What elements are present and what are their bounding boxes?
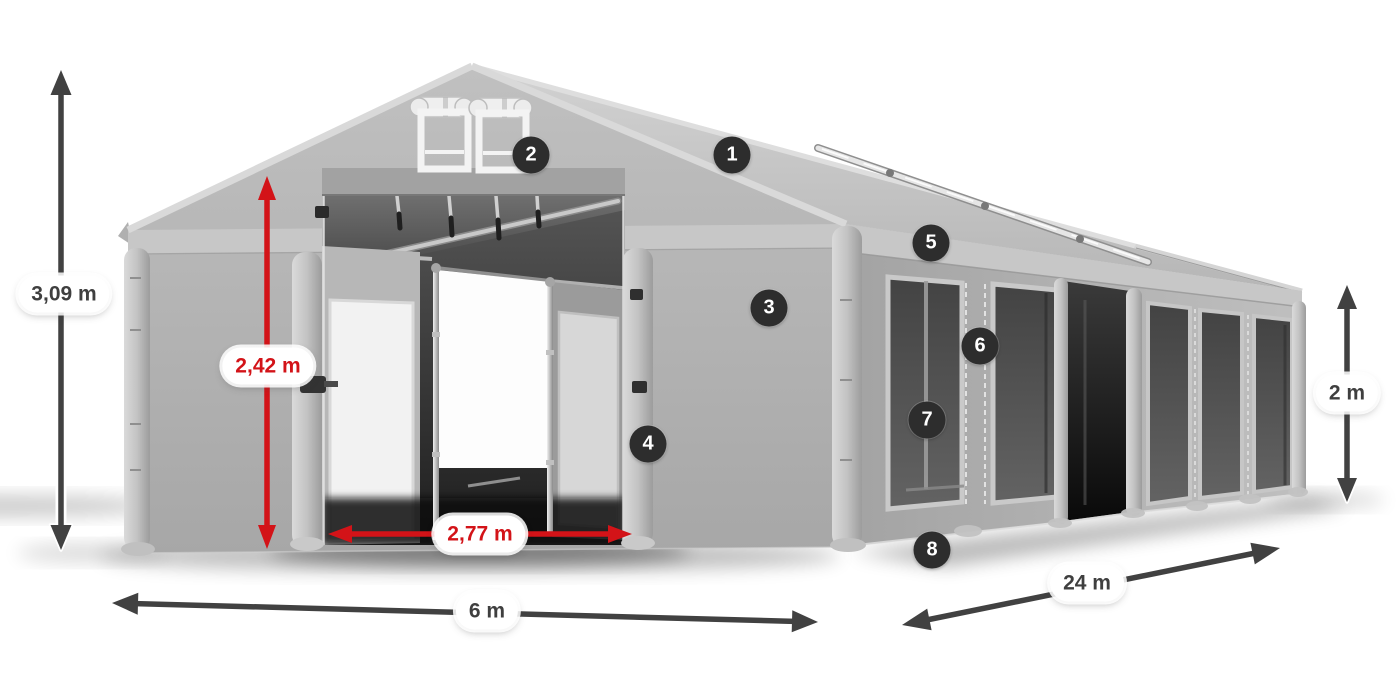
side-height-label: 2 m: [1316, 375, 1378, 412]
callout-7-frame-pole: 7: [909, 402, 946, 439]
rolled-flap-left: [1054, 278, 1068, 524]
door-frame-right: [621, 248, 655, 550]
side-window-1: [888, 277, 964, 509]
tent-illustration: [0, 0, 1400, 700]
callout-2-roof-vents: 2: [513, 137, 550, 174]
see-through-gap: [438, 270, 550, 468]
rear-corner-roll: [1292, 301, 1306, 495]
side-window-3: [1148, 303, 1190, 504]
tent-dimension-diagram: 3,09 m 2,42 m 2,77 m 6 m 24 m 2 m 1 2 3 …: [0, 0, 1400, 700]
total-height-label: 3,09 m: [18, 276, 109, 313]
side-window-4: [1200, 310, 1242, 498]
side-entrance-open: [1054, 278, 1142, 524]
callout-6-window-panel: 6: [962, 328, 999, 365]
front-right-corner-roll: [830, 226, 866, 552]
front-left-corner-roll: [121, 248, 155, 556]
front-door-interior: [322, 194, 625, 545]
door-width-label: 2,77 m: [434, 516, 525, 553]
door-hinge-top-right: [630, 289, 643, 300]
door-hinge-top-left: [315, 206, 329, 218]
door-height-label: 2,42 m: [222, 348, 313, 385]
side-length-label: 24 m: [1050, 565, 1124, 602]
callout-5-valance: 5: [913, 225, 950, 262]
rolled-flap-right: [1126, 288, 1142, 516]
callout-8-wall-bottom: 8: [914, 532, 951, 569]
side-window-2: [993, 284, 1057, 503]
side-window-5: [1254, 316, 1292, 492]
door-header-band: [322, 168, 625, 195]
door-latch-right: [632, 381, 647, 393]
callout-4-door-frame: 4: [630, 426, 667, 463]
front-width-label: 6 m: [456, 593, 518, 630]
callout-3-front-wall: 3: [751, 290, 788, 327]
callout-1-roof: 1: [714, 137, 751, 174]
